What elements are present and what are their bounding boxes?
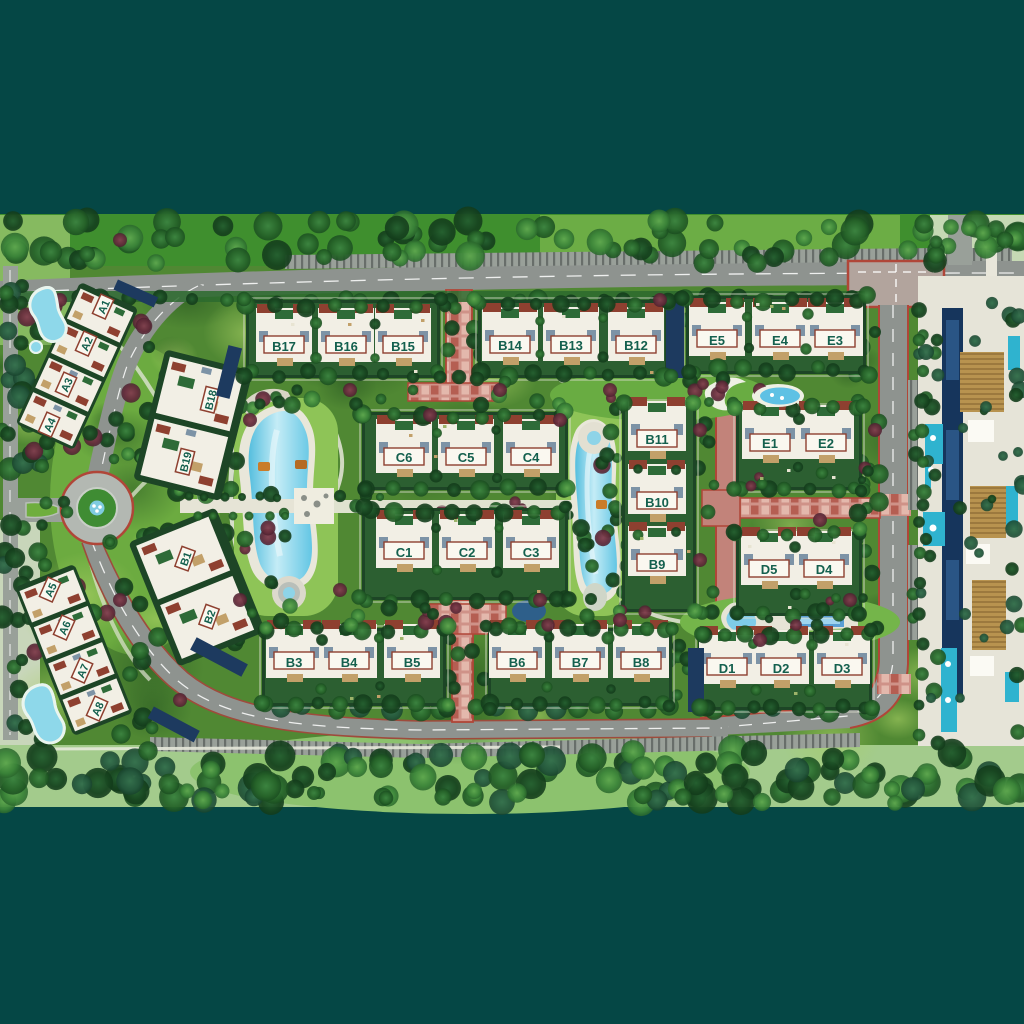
svg-text:E4: E4 bbox=[772, 333, 789, 348]
svg-text:B11: B11 bbox=[645, 432, 668, 447]
svg-text:B15: B15 bbox=[391, 339, 415, 354]
svg-text:D2: D2 bbox=[773, 661, 790, 676]
svg-text:D1: D1 bbox=[719, 661, 736, 676]
svg-text:C4: C4 bbox=[523, 450, 540, 465]
svg-text:B6: B6 bbox=[509, 655, 526, 670]
svg-text:E2: E2 bbox=[818, 436, 834, 451]
svg-text:D5: D5 bbox=[761, 562, 778, 577]
svg-text:C2: C2 bbox=[459, 545, 476, 560]
svg-text:B12: B12 bbox=[624, 338, 648, 353]
svg-text:C3: C3 bbox=[523, 545, 540, 560]
svg-text:C1: C1 bbox=[396, 545, 413, 560]
svg-text:D3: D3 bbox=[834, 661, 851, 676]
svg-text:B5: B5 bbox=[404, 655, 421, 670]
svg-text:D4: D4 bbox=[816, 562, 833, 577]
svg-text:B3: B3 bbox=[286, 655, 303, 670]
svg-text:B9: B9 bbox=[649, 557, 666, 572]
svg-text:B7: B7 bbox=[572, 655, 589, 670]
svg-text:B17: B17 bbox=[272, 339, 296, 354]
svg-text:E1: E1 bbox=[762, 436, 778, 451]
svg-text:B8: B8 bbox=[633, 655, 650, 670]
svg-text:E5: E5 bbox=[709, 333, 725, 348]
svg-text:B14: B14 bbox=[498, 338, 523, 353]
svg-text:E3: E3 bbox=[827, 333, 843, 348]
svg-text:B4: B4 bbox=[341, 655, 358, 670]
svg-text:C6: C6 bbox=[396, 450, 413, 465]
svg-text:B13: B13 bbox=[559, 338, 583, 353]
svg-text:C5: C5 bbox=[458, 450, 475, 465]
svg-text:B16: B16 bbox=[334, 339, 358, 354]
svg-text:B10: B10 bbox=[645, 495, 669, 510]
